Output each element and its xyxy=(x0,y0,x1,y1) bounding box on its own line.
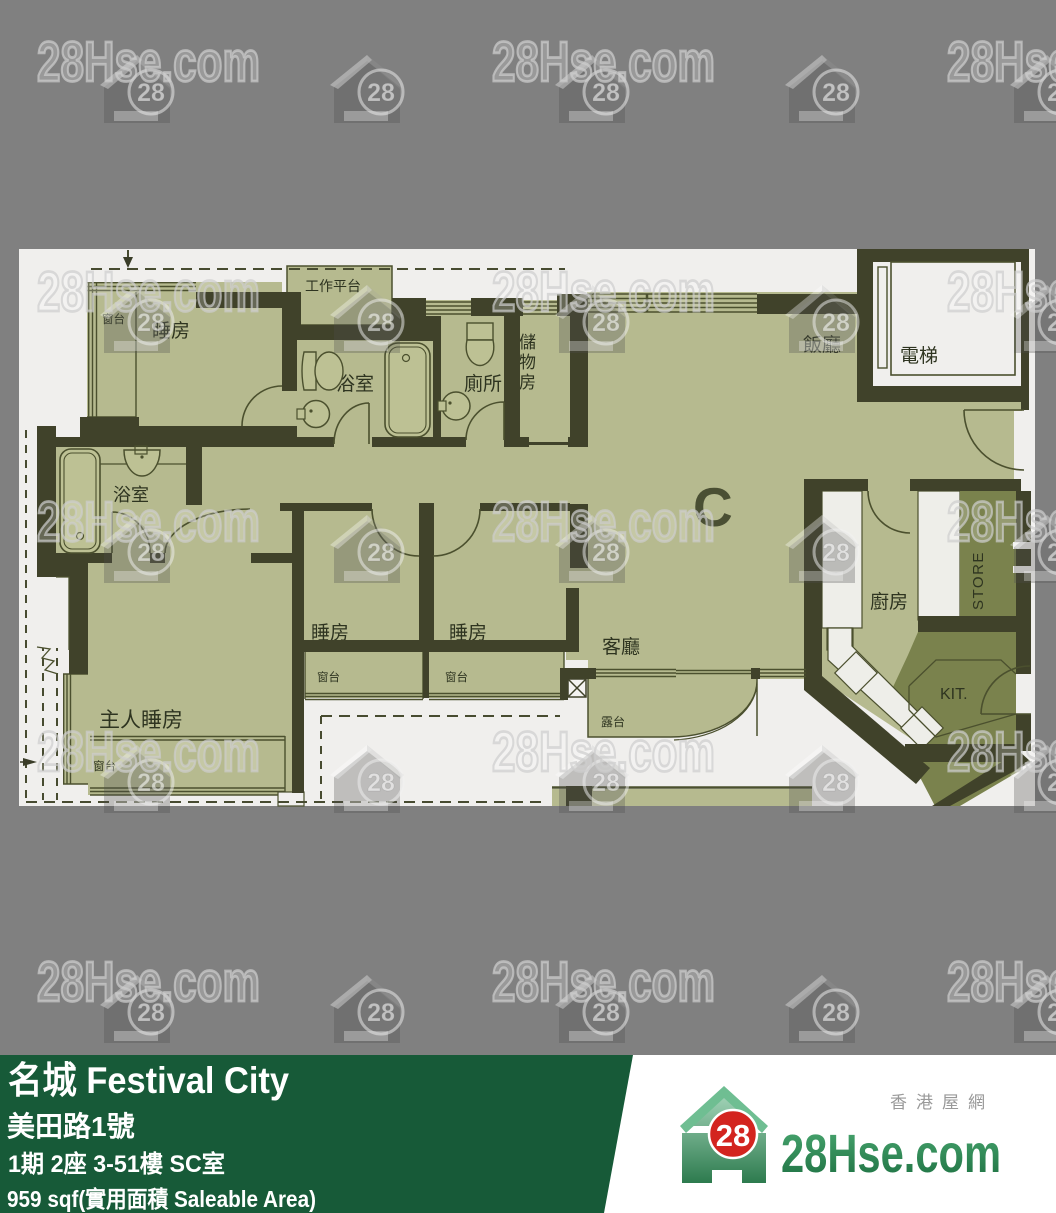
svg-text:香港屋網: 香港屋網 xyxy=(890,1093,994,1112)
svg-text:28: 28 xyxy=(716,1118,750,1153)
svg-text:美田路1號: 美田路1號 xyxy=(7,1111,135,1142)
svg-text:1期 2座 3-51樓 SC室: 1期 2座 3-51樓 SC室 xyxy=(8,1150,225,1178)
svg-text:名城 Festival City: 名城 Festival City xyxy=(8,1060,289,1101)
svg-text:28Hse.com: 28Hse.com xyxy=(781,1124,1001,1184)
svg-text:959 sqf(實用面積 Saleable Area): 959 sqf(實用面積 Saleable Area) xyxy=(7,1186,316,1212)
